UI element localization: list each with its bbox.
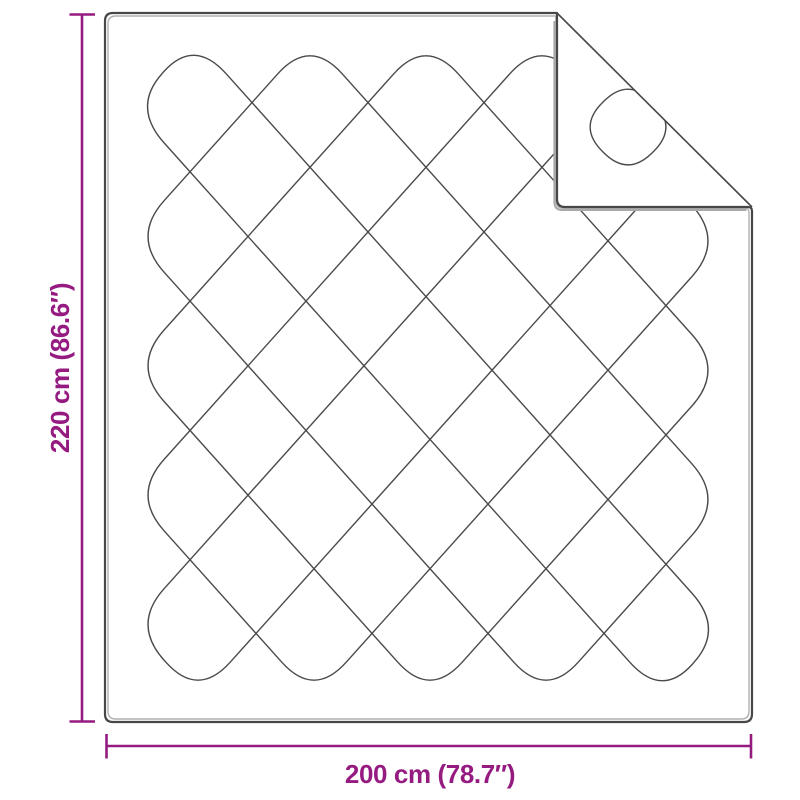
product-dimension-diagram: 220 cm (86.6″) 200 cm (78.7″) <box>0 0 800 800</box>
blanket-diagram-canvas: 220 cm (86.6″) 200 cm (78.7″) <box>0 0 800 800</box>
width-dimension-label: 200 cm (78.7″) <box>345 759 515 789</box>
blanket <box>105 13 752 722</box>
height-dimension-label: 220 cm (86.6″) <box>45 283 75 453</box>
